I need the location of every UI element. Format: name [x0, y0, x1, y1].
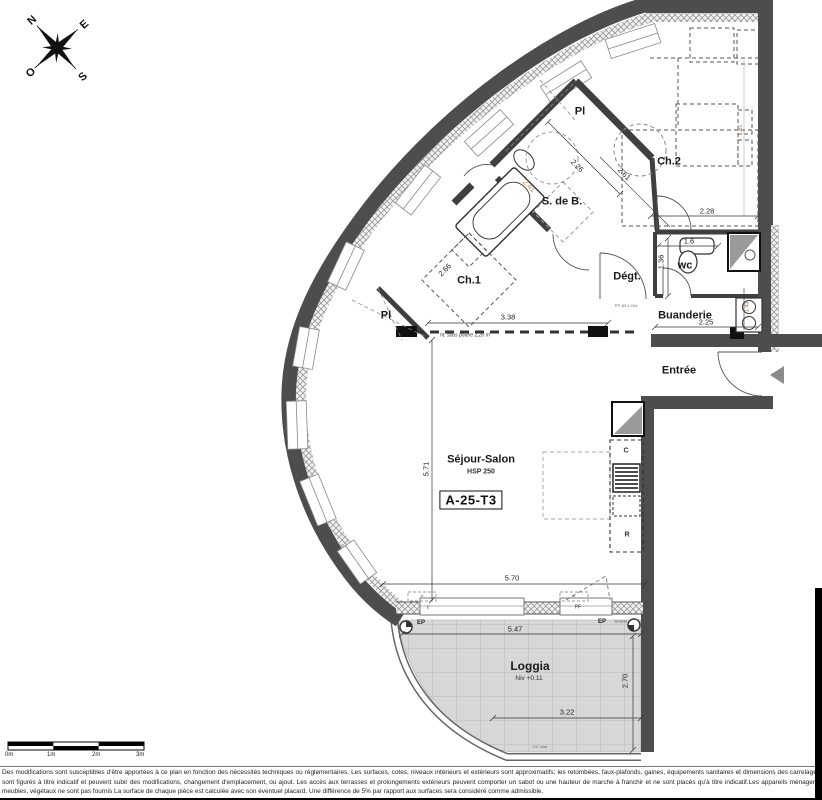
dim-loggia-width: 5.47 — [508, 625, 523, 633]
room-label-pl-left: Pl — [381, 311, 391, 322]
shutter-label-1: vr — [420, 594, 423, 598]
room-label-entree: Entrée — [662, 366, 696, 377]
room-label-degt: Dégt. — [613, 272, 641, 283]
scale-2m: 2m — [92, 752, 100, 758]
beam-line — [396, 326, 640, 337]
ep-label-right: EP — [598, 619, 606, 625]
room-label-pl-top: Pl — [575, 107, 585, 118]
dim-wc-width: 1.6 — [684, 237, 694, 245]
room-label-ch1: Ch.1 — [457, 276, 481, 287]
loggia-level-note: Niv +0.11 — [515, 676, 542, 683]
kitchen-label-r: R — [624, 532, 629, 539]
page-right-border — [815, 588, 822, 800]
dim-sejour-width: 5.70 — [505, 574, 520, 582]
railing-note: GC vitré — [533, 745, 548, 749]
curved-facade-wall — [289, 4, 652, 620]
dim-buanderie-depth: 1.43 — [745, 302, 751, 313]
room-label-sejour: Séjour-Salon — [447, 455, 515, 466]
sejour-ceiling-note: HSP 250 — [467, 469, 495, 476]
bathroom-fixtures — [455, 146, 762, 332]
dim-ch2-side: 1.61 — [738, 125, 744, 136]
dim-ch1-width: 3.38 — [501, 313, 516, 321]
scale-1m: 1m — [47, 752, 55, 758]
room-label-ch2: Ch.2 — [657, 157, 681, 168]
loggia-area — [394, 617, 641, 757]
sejour-window-wall — [396, 576, 643, 615]
entrance-arrow — [770, 366, 784, 384]
door-size-note: PP. 83 x 204 — [615, 304, 637, 308]
kitchen-label-c: C — [623, 448, 628, 455]
compass-n: N — [25, 13, 39, 27]
room-label-wc: wc — [678, 261, 693, 272]
dim-sejour-depth: 5.71 — [422, 462, 430, 477]
room-label-loggia: Loggia — [510, 660, 549, 672]
floorplan-page: N E S O Pl Ch.2 S. de B. Ch.1 Dégt. wc B… — [0, 0, 822, 800]
ep-label-left: EP — [417, 620, 425, 626]
legal-disclaimer: Des modifications sont susceptibles d'êt… — [0, 766, 822, 800]
terrasse-note: terrasse — [615, 620, 628, 624]
dim-ch2-width: 2.28 — [700, 207, 715, 215]
compass-e: E — [78, 18, 91, 32]
dim-loggia-inner: 3.22 — [560, 708, 575, 716]
beam-height-note: ht. sous poutre 2,20 m — [440, 334, 490, 339]
compass-o: O — [24, 65, 39, 80]
window-label-pf: PF — [575, 606, 581, 611]
shutter-label-2: vr — [572, 594, 575, 598]
room-label-sdb: S. de B. — [542, 197, 582, 208]
dim-wc-depth: 1.36 — [657, 255, 665, 270]
dim-buanderie-width: 2.25 — [699, 318, 714, 326]
apartment-code: A-25-T3 — [439, 491, 502, 510]
compass-s: S — [76, 70, 89, 84]
scale-bar — [8, 742, 144, 750]
floorplan-drawing: N E S O — [0, 0, 822, 764]
scale-0m: 0m — [5, 752, 13, 758]
scale-3m: 3m — [136, 752, 144, 758]
compass-rose: N E S O — [0, 0, 117, 108]
dim-loggia-depth: 2.70 — [621, 674, 629, 689]
window-label-c: c — [427, 606, 430, 611]
